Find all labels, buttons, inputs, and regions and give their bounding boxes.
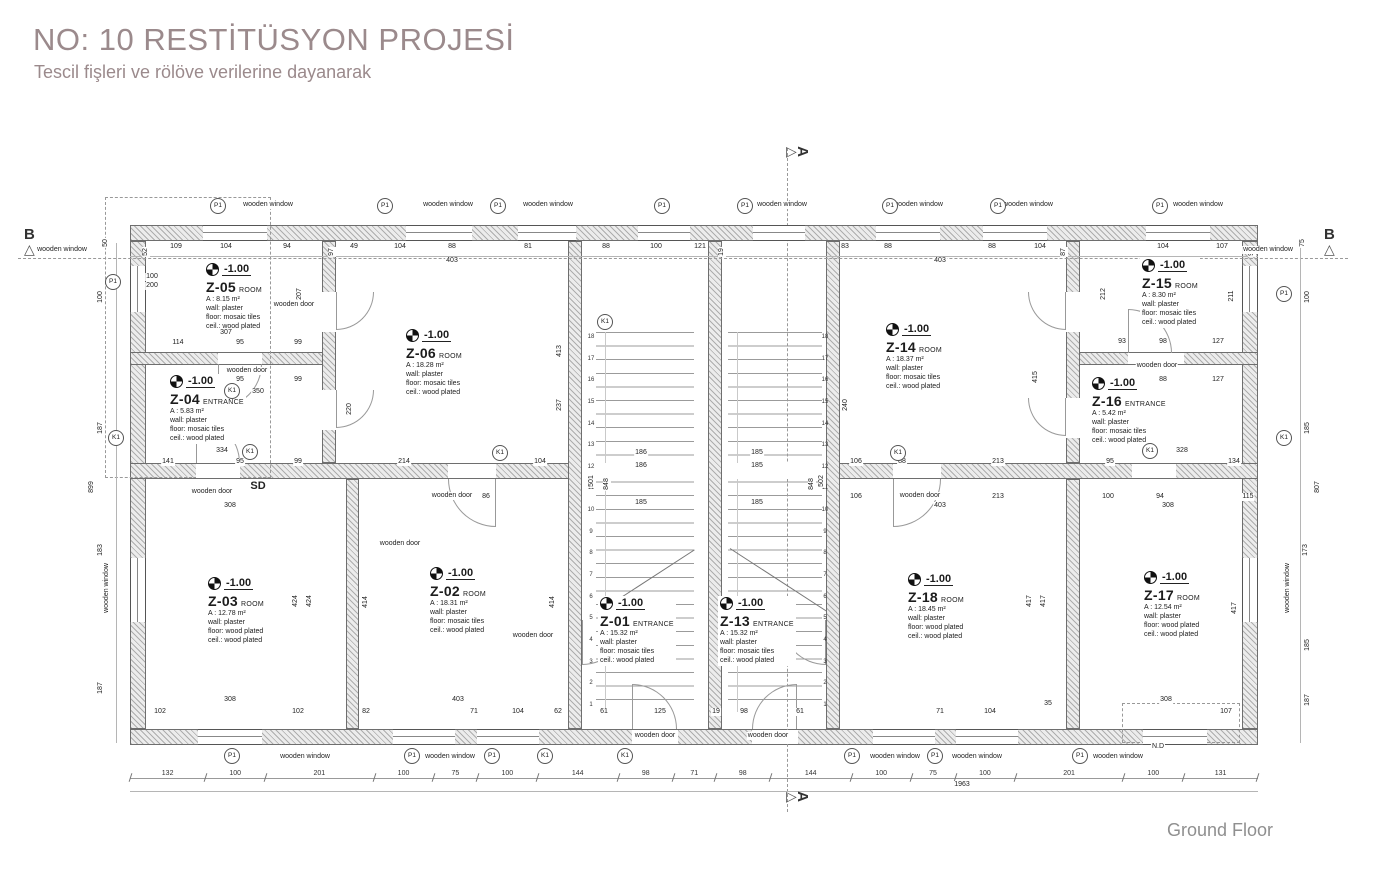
stair-step-number: 15 [820,399,830,405]
wooden-door-label: wooden door [899,492,941,500]
dim-label: 104 [219,243,233,251]
dim-label: 35 [1043,700,1053,708]
k1-marker: K1 [492,445,508,461]
dim-label: 186 [634,449,648,457]
dim-label: 173 [1302,543,1310,557]
dim-segment: 98 [618,767,673,778]
section-letter: B [24,228,35,242]
k1-marker: K1 [597,314,613,330]
dim-label: 71 [469,708,479,716]
section-letter: A [794,791,811,802]
level-marker: -1.00 [208,577,264,590]
dim-line [130,256,1258,257]
stair-step-number: 7 [820,572,830,578]
dim-label: 413 [556,344,564,358]
stair-step-number: 8 [586,550,596,556]
dim-label: 98 [739,708,749,716]
stair-step-number: 8 [820,550,830,556]
level-marker: -1.00 [886,323,942,336]
wooden-window-label: wooden window [892,201,944,209]
p1-marker: P1 [224,748,240,764]
room-label-z18: -1.00 Z-18ROOM A : 18.45 m² wall: plaste… [906,572,966,642]
dim-segment: 100 [374,767,434,778]
dim-label: 415 [1032,370,1040,384]
dim-segment: 201 [265,767,373,778]
win [1242,558,1258,622]
level-marker-icon [430,567,443,580]
stair-step-number: 10 [820,507,830,513]
stair-step-number: 18 [586,334,596,340]
wall [130,729,1258,745]
dim-label: 134 [1227,458,1241,466]
k1-marker: K1 [242,444,258,460]
dim-label: 1963 [953,781,971,789]
win [203,225,267,241]
stair-step-number: 1 [586,702,596,708]
dim-segment: 201 [1015,767,1123,778]
dim-label: 417 [1040,594,1048,608]
dim-label: 95 [1105,458,1115,466]
dim-label: 94 [282,243,292,251]
dim-segment: 100 [1123,767,1183,778]
level-marker-icon [208,577,221,590]
dim-label: 308 [1159,696,1173,704]
stair-step-number: 16 [820,377,830,383]
dim-label: 88 [601,243,611,251]
level-marker: -1.00 [206,263,262,276]
k1-marker: K1 [617,748,633,764]
dim-label: 186 [634,462,648,470]
dim-label: 100 [1304,290,1312,304]
bottom-dimension-chain: 1321002011007510014498719814410075100201… [130,767,1258,779]
door-arc [1028,398,1066,436]
dim-label: 104 [1033,243,1047,251]
dim-label: 81 [523,243,533,251]
dim-label: 417 [1026,594,1034,608]
gap [322,390,336,430]
dim-segment: 75 [433,767,477,778]
wall [346,479,359,729]
room-label-z06: -1.00 Z-06ROOM A : 18.28 m² wall: plaste… [404,328,464,398]
dim-label: 102 [291,708,305,716]
dim-label: 185 [634,499,648,507]
dim-label: 104 [511,708,525,716]
wooden-window-label: wooden window [869,753,921,761]
dim-label: 100 [1101,493,1115,501]
stair-step-number: 12 [586,464,596,470]
wooden-door-label: wooden door [1136,362,1178,370]
wooden-door-label: wooden door [226,367,268,375]
stair-step-number: 17 [820,356,830,362]
dim-label: 807 [1314,480,1322,494]
section-marker-a-top: ▷A [786,143,808,161]
level-marker: -1.00 [1142,259,1198,272]
win [130,558,146,622]
section-marker-b-left: B△ [24,228,35,256]
dim-label: 109 [169,243,183,251]
p1-marker: P1 [404,748,420,764]
dim-label: 417 [1231,601,1239,615]
level-marker: -1.00 [908,573,964,586]
dim-label: 61 [795,708,805,716]
wall [130,225,1258,241]
dim-label: 185 [750,499,764,507]
wooden-window-label: wooden window [951,753,1003,761]
dim-label: 121 [693,243,707,251]
dim-label: 403 [933,257,947,265]
dim-label: 200 [145,282,159,290]
level-marker-icon [1144,571,1157,584]
p1-marker: P1 [484,748,500,764]
p1-marker: P1 [844,748,860,764]
dim-label: 95 [235,458,245,466]
dim-label: 187 [97,421,105,435]
wall [1066,479,1080,729]
gap [1066,398,1080,438]
dim-label: 350 [251,388,265,396]
wooden-window-label: wooden window [422,201,474,209]
dim-label: 75 [1299,238,1307,248]
p1-marker: P1 [1152,198,1168,214]
level-marker-icon [886,323,899,336]
win [873,729,935,745]
p1-marker: P1 [654,198,670,214]
dim-label: 185 [750,449,764,457]
dim-label: 97 [328,247,336,257]
dim-label: 114 [171,339,184,347]
dim-segment: 100 [955,767,1015,778]
stair-step-number: 6 [586,594,596,600]
win [198,729,262,745]
level-marker: -1.00 [600,597,674,610]
dim-label: 115 [1241,493,1254,501]
dim-label: 502 [818,474,826,488]
dim-label: 82 [361,708,371,716]
stair-step-number: 17 [586,356,596,362]
dim-label: 213 [991,458,1005,466]
room-label-z16: -1.00 Z-16ENTRANCE A : 5.42 m² wall: pla… [1090,376,1168,446]
k1-marker: K1 [890,445,906,461]
nd-label: N.D [1151,743,1165,751]
stair-step-number: 13 [586,442,596,448]
dim-label: 127 [1211,338,1225,346]
win [638,225,690,241]
dim-label: 95 [235,339,245,347]
wooden-window-label: wooden window [279,753,331,761]
dim-label: 88 [1158,376,1168,384]
stair-step-number: 16 [586,377,596,383]
p1-marker: P1 [377,198,393,214]
dim-label: 307 [219,329,233,337]
dim-label: 106 [849,458,863,466]
stair-step-number: 12 [820,464,830,470]
dim-segment: 100 [477,767,537,778]
door-arc [336,390,374,428]
level-marker-icon [1092,377,1105,390]
dim-label: 104 [393,243,407,251]
dim-label: 100 [145,273,159,281]
k1-marker: K1 [108,430,124,446]
dim-label: 50 [102,238,110,248]
door-arc [448,479,496,527]
dim-label: 127 [1211,376,1225,384]
k1-marker: K1 [537,748,553,764]
wooden-door-label: wooden door [431,492,473,500]
stair-step-number: 1 [820,702,830,708]
dim-label: 403 [451,696,465,704]
p1-marker: P1 [210,198,226,214]
level-marker: -1.00 [720,597,794,610]
level-marker: -1.00 [1144,571,1200,584]
p1-marker: P1 [490,198,506,214]
room-label-z17: -1.00 Z-17ROOM A : 12.54 m² wall: plaste… [1142,570,1202,640]
dim-label: 207 [296,287,304,301]
level-marker-icon [206,263,219,276]
room-label-z01: -1.00 Z-01ENTRANCE A : 15.32 m² wall: pl… [598,596,676,666]
wooden-window-label: wooden window [103,562,111,614]
win [983,225,1047,241]
win [1146,225,1210,241]
gap [218,353,262,364]
dim-label: 403 [933,502,947,510]
level-marker: -1.00 [406,329,462,342]
k1-marker: K1 [224,383,240,399]
dim-label: 414 [549,595,557,609]
wooden-door-label: wooden door [273,301,315,309]
dim-label: 240 [842,398,850,412]
dim-label: 19 [711,708,721,716]
stair-step-number: 7 [586,572,596,578]
dim-segment: 100 [205,767,265,778]
dim-label: 141 [161,458,175,466]
dim-label: 104 [533,458,547,466]
p1-marker: P1 [882,198,898,214]
dim-label: 848 [603,477,611,491]
dim-label: 185 [1304,421,1312,435]
wooden-window-label: wooden window [1172,201,1224,209]
section-marker-a-bottom: ▷A [786,788,808,806]
dim-label: 88 [987,243,997,251]
section-marker-b-right: B△ [1324,228,1335,256]
level-marker: -1.00 [1092,377,1166,390]
wooden-window-label: wooden window [1242,246,1294,254]
wall [1242,241,1258,729]
section-letter: A [794,146,811,157]
p1-marker: P1 [990,198,1006,214]
dim-label: 107 [1219,708,1233,716]
stair-step-number: 13 [820,442,830,448]
dim-label: 98 [1158,338,1168,346]
dim-label: 328 [1175,447,1189,455]
win [518,225,576,241]
k1-marker: K1 [1142,443,1158,459]
stair-step-number: 9 [586,529,596,535]
wooden-window-label: wooden window [424,753,476,761]
p1-marker: P1 [927,748,943,764]
level-marker-icon [406,329,419,342]
dim-label: 214 [397,458,411,466]
dim-label: 83 [840,243,850,251]
stair-step-numbers: 123456789101112131415161718 [820,334,830,708]
dim-label: 102 [153,708,167,716]
wooden-window-label: wooden window [1284,562,1292,614]
floor-plan: ▷A ▷A B△ B△ 1321002011007510014498719814… [0,0,1400,889]
dim-label: 424 [306,594,314,608]
stair-step-number: 14 [820,421,830,427]
section-letter: B [1324,228,1335,242]
room-label-z15: -1.00 Z-15ROOM A : 8.30 m² wall: plaster… [1140,258,1200,328]
dim-label: 49 [349,243,359,251]
stair-step-number: 10 [586,507,596,513]
level-marker-icon [600,597,613,610]
dim-label: 93 [1117,338,1127,346]
dim-label: 106 [849,493,863,501]
level-marker-icon [908,573,921,586]
stair-step-number: 2 [820,680,830,686]
gap [1066,292,1080,332]
dim-label: 308 [223,696,237,704]
dim-label: 185 [1304,638,1312,652]
sd-label: SD [249,482,266,490]
stair-step-number: 5 [586,615,596,621]
section-triangle-icon: △ [1324,242,1335,256]
wooden-window-label: wooden window [1002,201,1054,209]
dim-label: 104 [1156,243,1170,251]
dim-segment: 132 [130,767,205,778]
gap [448,464,496,478]
level-marker-icon [720,597,733,610]
k1-marker: K1 [1276,430,1292,446]
p1-marker: P1 [1276,286,1292,302]
dim-label: 848 [808,477,816,491]
dim-label: 414 [362,595,370,609]
gap [322,292,336,332]
stair-step-number: 15 [586,399,596,405]
room-label-z03: -1.00 Z-03ROOM A : 12.78 m² wall: plaste… [206,576,266,646]
dim-label: 94 [1155,493,1165,501]
dim-label: 308 [223,502,237,510]
level-marker: -1.00 [430,567,486,580]
wooden-door-label: wooden door [191,488,233,496]
dim-label: 88 [447,243,457,251]
dim-label: 501 [588,474,596,488]
dim-segment: 131 [1183,767,1258,778]
wooden-window-label: wooden window [1092,753,1144,761]
dim-label: 99 [293,376,303,384]
gap [1132,464,1176,478]
dim-label: 899 [88,480,96,494]
win [1242,266,1258,312]
wall [568,241,582,729]
stair-step-number: 18 [820,334,830,340]
win [753,225,805,241]
dim-label: 87 [1060,247,1068,257]
stair-step-number: 2 [586,680,596,686]
dim-line [1300,243,1301,743]
dim-label: 99 [293,339,303,347]
dim-label: 424 [292,594,300,608]
dim-segment: 98 [715,767,770,778]
dim-label: 183 [97,543,105,557]
room-label-z13: -1.00 Z-13ENTRANCE A : 15.32 m² wall: pl… [718,596,796,666]
dim-label: 220 [346,402,354,416]
win [956,729,1018,745]
dim-label: 211 [1228,289,1236,302]
p1-marker: P1 [737,198,753,214]
dim-label: 125 [653,708,667,716]
dim-segment: 144 [537,767,618,778]
level-marker-icon [1142,259,1155,272]
win [876,225,940,241]
wooden-window-label: wooden window [522,201,574,209]
stair-step-number: 4 [820,637,830,643]
dim-label: 237 [556,398,564,412]
stair-step-number: 9 [820,529,830,535]
dim-segment: 75 [911,767,955,778]
dim-label: 61 [599,708,609,716]
wooden-door-label: wooden door [512,632,554,640]
dim-label: 187 [97,681,105,695]
dim-label: 187 [1304,693,1312,707]
level-marker-icon [170,375,183,388]
dim-label: 71 [935,708,945,716]
section-triangle-icon: △ [24,242,35,256]
room-label-z14: -1.00 Z-14ROOM A : 18.37 m² wall: plaste… [884,322,944,392]
wooden-window-label: wooden window [242,201,294,209]
dim-segment: 71 [673,767,715,778]
dim-label: 212 [1100,287,1108,301]
wooden-door-label: wooden door [747,732,789,740]
door-arc [1028,292,1066,330]
dim-label: 185 [750,462,764,470]
wooden-door-label: wooden door [634,732,676,740]
win [477,729,539,745]
door-arc [336,292,374,330]
dim-label: 100 [649,243,663,251]
dim-line [130,791,1258,792]
dim-label: 403 [445,257,459,265]
dim-line [116,243,117,743]
dim-label: 19 [718,247,726,257]
dim-label: 62 [553,708,563,716]
dim-label: 334 [215,447,229,455]
stair-step-number: 5 [820,615,830,621]
stair-step-number: 6 [820,594,830,600]
dim-label: 99 [293,458,303,466]
win [130,266,146,312]
dim-label: 308 [1161,502,1175,510]
dim-label: 104 [983,708,997,716]
wooden-door-label: wooden door [379,540,421,548]
room-label-z02: -1.00 Z-02ROOM A : 18.31 m² wall: plaste… [428,566,488,636]
dim-label: 107 [1215,243,1229,251]
gap [893,464,941,478]
stair-step-numbers: 123456789101112131415161718 [586,334,596,708]
dim-segment: 144 [770,767,851,778]
p1-marker: P1 [1072,748,1088,764]
wooden-window-label: wooden window [756,201,808,209]
room-label-z05: -1.00 Z-05ROOM A : 8.15 m² wall: plaster… [204,262,264,332]
dim-label: 213 [991,493,1005,501]
win [406,225,472,241]
stair-step-number: 14 [586,421,596,427]
p1-marker: P1 [105,274,121,290]
dim-label: 95 [235,376,245,384]
dim-label: 100 [97,290,105,304]
win [393,729,455,745]
dim-segment: 100 [851,767,911,778]
stair-step-number: 4 [586,637,596,643]
